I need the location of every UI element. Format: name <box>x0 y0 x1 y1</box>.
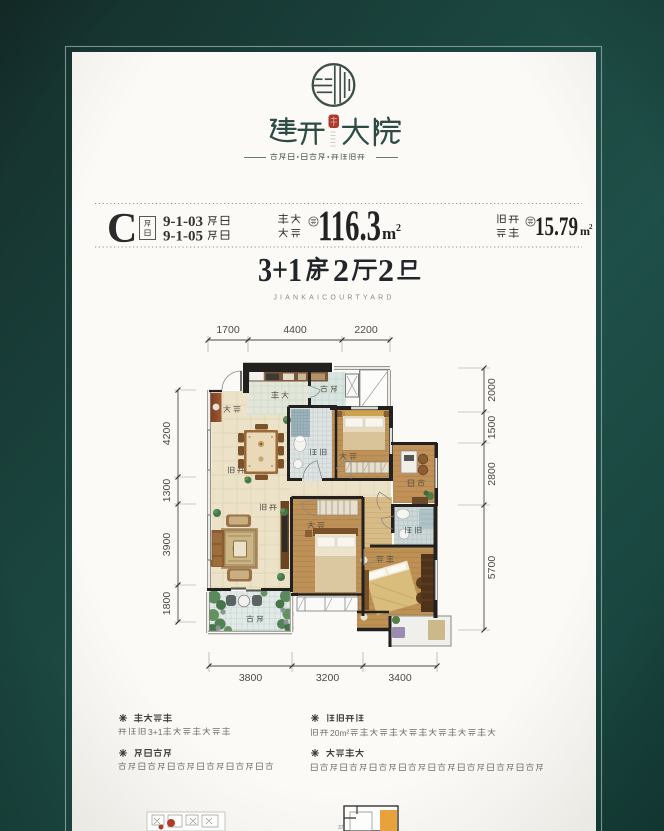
svg-text:3+1: 3+1 <box>258 252 302 289</box>
svg-text:3400: 3400 <box>388 672 412 684</box>
svg-text:2: 2 <box>378 252 394 288</box>
svg-text:20m²: 20m² <box>330 728 350 738</box>
svg-text:2: 2 <box>333 252 349 288</box>
svg-text:116.3: 116.3 <box>318 203 381 250</box>
svg-text:2: 2 <box>589 223 593 231</box>
svg-text:m: m <box>382 224 396 243</box>
svg-text:2000: 2000 <box>486 378 498 402</box>
svg-text:15.79: 15.79 <box>535 212 578 241</box>
svg-text:1300: 1300 <box>161 479 173 503</box>
svg-text:4200: 4200 <box>161 422 173 446</box>
svg-text:3800: 3800 <box>239 672 263 684</box>
svg-text:2: 2 <box>396 223 401 234</box>
svg-text:1700: 1700 <box>216 324 240 336</box>
svg-text:37: 37 <box>338 825 344 831</box>
svg-text:9-1-05: 9-1-05 <box>163 229 203 245</box>
svg-text:3900: 3900 <box>161 533 173 557</box>
svg-text:5700: 5700 <box>486 556 498 580</box>
svg-text:3+1: 3+1 <box>148 727 163 737</box>
svg-text:2200: 2200 <box>354 324 378 336</box>
svg-text:3200: 3200 <box>316 672 340 684</box>
svg-text:2800: 2800 <box>486 462 498 486</box>
svg-text:JIANKAICOURTYARD: JIANKAICOURTYARD <box>273 295 394 302</box>
svg-text:C: C <box>107 206 137 252</box>
svg-text:1500: 1500 <box>486 416 498 440</box>
svg-text:4400: 4400 <box>283 324 307 336</box>
svg-text:1800: 1800 <box>161 592 173 616</box>
